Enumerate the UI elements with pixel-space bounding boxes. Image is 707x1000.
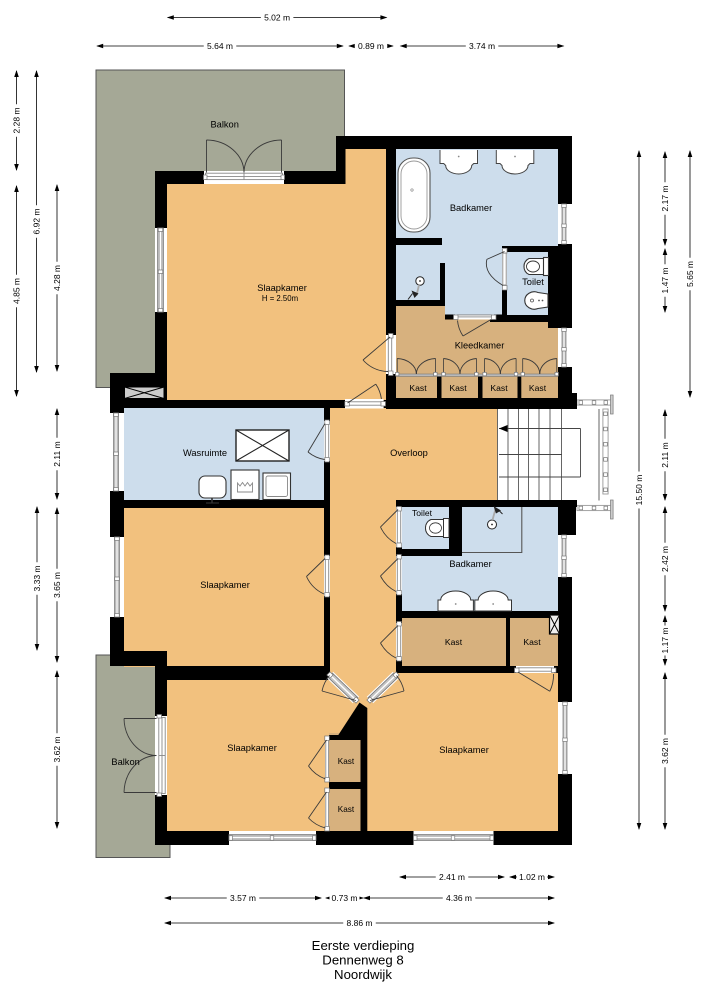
svg-text:Slaapkamer: Slaapkamer [200, 580, 250, 590]
svg-text:5.64 m: 5.64 m [207, 41, 233, 51]
svg-text:2.42 m: 2.42 m [660, 546, 670, 572]
svg-text:0.89 m: 0.89 m [358, 41, 384, 51]
svg-text:2.11 m: 2.11 m [660, 442, 670, 467]
svg-text:Kast: Kast [523, 637, 541, 647]
svg-text:Kast: Kast [529, 383, 547, 393]
svg-text:Kast: Kast [449, 383, 467, 393]
svg-text:Toilet: Toilet [522, 277, 544, 287]
svg-text:Overloop: Overloop [390, 448, 428, 458]
svg-text:8.86 m: 8.86 m [347, 918, 373, 928]
svg-text:Kast: Kast [338, 757, 355, 766]
svg-text:0.73 m: 0.73 m [332, 893, 358, 903]
svg-text:3.33 m: 3.33 m [32, 566, 42, 592]
svg-text:2.17 m: 2.17 m [660, 186, 670, 212]
svg-text:3.57 m: 3.57 m [230, 893, 256, 903]
svg-text:4.28 m: 4.28 m [52, 265, 62, 291]
svg-text:15.50 m: 15.50 m [634, 475, 644, 506]
svg-text:2.11 m: 2.11 m [52, 441, 62, 466]
svg-text:Balkon: Balkon [210, 120, 238, 130]
svg-text:Slaapkamer: Slaapkamer [227, 743, 277, 753]
svg-text:3.62 m: 3.62 m [660, 738, 670, 764]
svg-text:H = 2.50m: H = 2.50m [262, 294, 298, 303]
svg-text:6.92 m: 6.92 m [31, 209, 41, 235]
svg-text:4.36 m: 4.36 m [446, 893, 472, 903]
svg-text:Kast: Kast [409, 383, 427, 393]
svg-text:5.02 m: 5.02 m [264, 12, 290, 22]
svg-text:Dennenweg 8: Dennenweg 8 [322, 953, 403, 968]
svg-text:2.41 m: 2.41 m [439, 872, 465, 882]
svg-text:Balkon: Balkon [111, 757, 139, 767]
svg-text:Slaapkamer: Slaapkamer [257, 283, 307, 293]
svg-text:Toilet: Toilet [412, 508, 433, 518]
svg-text:3.62 m: 3.62 m [52, 737, 62, 763]
svg-text:Wasruimte: Wasruimte [183, 448, 227, 458]
svg-text:Badkamer: Badkamer [450, 203, 492, 213]
svg-text:2.28 m: 2.28 m [11, 108, 21, 134]
svg-text:3.74 m: 3.74 m [469, 41, 495, 51]
svg-text:Kast: Kast [338, 805, 355, 814]
svg-text:Kast: Kast [490, 383, 508, 393]
svg-text:4.85 m: 4.85 m [11, 278, 21, 304]
svg-text:Kast: Kast [445, 637, 463, 647]
svg-text:Noordwijk: Noordwijk [334, 967, 392, 982]
svg-text:Eerste verdieping: Eerste verdieping [312, 938, 415, 953]
svg-text:3.65 m: 3.65 m [52, 572, 62, 598]
svg-text:5.65 m: 5.65 m [685, 261, 695, 287]
svg-text:1.17 m: 1.17 m [660, 628, 670, 654]
svg-text:Badkamer: Badkamer [449, 559, 491, 569]
svg-text:1.47 m: 1.47 m [660, 268, 670, 294]
svg-text:1.02 m: 1.02 m [519, 872, 545, 882]
svg-text:Slaapkamer: Slaapkamer [439, 745, 489, 755]
svg-text:Kleedkamer: Kleedkamer [455, 341, 505, 351]
